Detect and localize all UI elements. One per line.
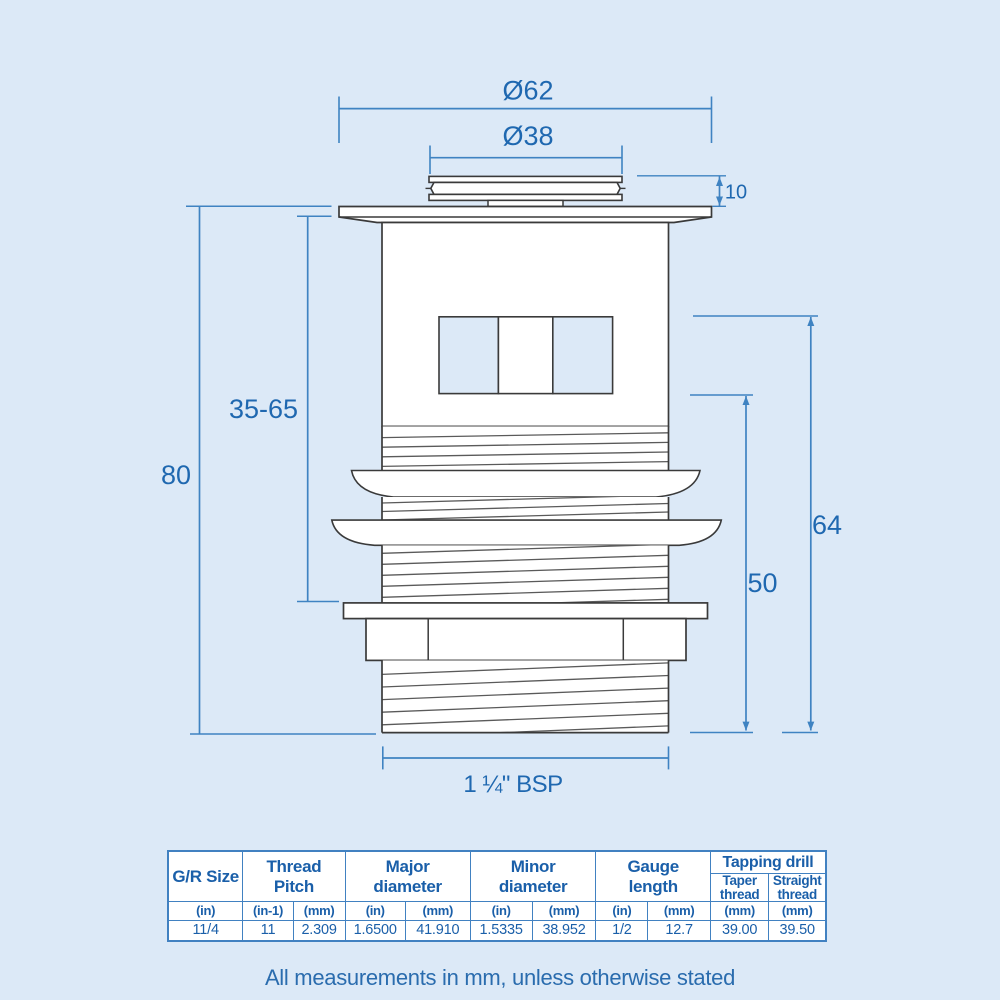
svg-text:64: 64 [812, 510, 842, 540]
svg-text:50: 50 [747, 568, 777, 598]
svg-text:Ø38: Ø38 [502, 121, 553, 151]
svg-text:10: 10 [725, 182, 747, 204]
svg-text:35-65: 35-65 [229, 394, 298, 424]
svg-text:1 ¼" BSP: 1 ¼" BSP [463, 771, 562, 798]
svg-text:80: 80 [161, 460, 191, 490]
svg-text:Ø62: Ø62 [502, 76, 553, 106]
